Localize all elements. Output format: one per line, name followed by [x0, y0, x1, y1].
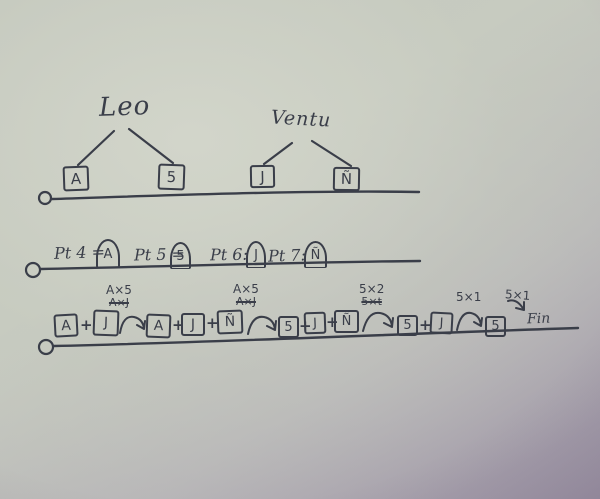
annotation-kept-5: 5×1: [505, 287, 531, 303]
end-label-fin: Fin: [527, 311, 551, 328]
timeline2-anchor-circle: [26, 263, 40, 277]
step-annotation-4: 5×1: [456, 291, 481, 303]
paper-background: Leo Ventu A 5 J Ñ Pt 4 = A Pt 5 = 5 Pt 6…: [0, 0, 600, 499]
step-annotation-2: A×5 A×J: [233, 283, 259, 308]
tree-edge-leo-a: [78, 131, 114, 165]
point-label-7: Pt 7:: [268, 245, 306, 265]
point-value-7: Ñ: [304, 241, 327, 268]
seq-box-2-j: J: [93, 310, 120, 337]
seq-box-7-j: J: [304, 312, 327, 335]
plus-sign-1: +: [80, 316, 93, 334]
timeline1-anchor-circle: [39, 192, 51, 204]
step-annotation-5: 5×1: [505, 288, 531, 302]
annotation-kept-2: A×5: [233, 282, 259, 296]
annotation-kept-3: 5×2: [359, 282, 384, 296]
node-box-n: Ñ: [333, 167, 360, 191]
group-label-ventu: Ventu: [270, 106, 331, 131]
seq-box-9-5: 5: [397, 315, 418, 336]
timeline3-anchor-circle: [39, 340, 53, 354]
annotation-kept-1: A×5: [106, 283, 132, 297]
seq-box-6-5: 5: [278, 316, 299, 338]
annotation-crossed-3: 5×t: [359, 296, 384, 308]
node-box-a: A: [63, 166, 90, 192]
step-annotation-1: A×5 A×J: [106, 284, 132, 309]
seq-box-1-a: A: [53, 313, 78, 337]
step-annotation-3: 5×2 5×t: [359, 283, 384, 308]
annotation-crossed-1: A×J: [106, 297, 132, 309]
point-label-6: Pt 6:: [210, 245, 248, 265]
group-label-leo: Leo: [98, 91, 150, 123]
curvy-arrow-icon-1: [120, 317, 145, 333]
point-value-6: J: [246, 241, 266, 268]
node-box-j: J: [250, 165, 275, 188]
seq-box-3-a: A: [146, 314, 172, 339]
point-value-4: A: [96, 239, 120, 268]
seq-box-10-j: J: [429, 311, 453, 334]
curvy-arrow-icon-2: [248, 317, 276, 334]
timeline1-line: [52, 192, 419, 199]
curvy-arrow-icon-4: [457, 313, 482, 330]
tree-edge-leo-5: [129, 129, 173, 163]
seq-box-8-n: Ñ: [334, 310, 359, 333]
node-box-5: 5: [158, 164, 186, 191]
seq-box-11-5: 5: [485, 316, 506, 337]
tree-edge-ventu-n: [312, 141, 351, 166]
seq-box-5-n: Ñ: [217, 310, 244, 335]
point-value-5: 5: [170, 242, 191, 269]
annotation-crossed-2: A×J: [233, 296, 259, 308]
curvy-arrow-icon-3: [363, 313, 393, 331]
seq-box-4-j: J: [181, 313, 205, 336]
annotation-kept-4: 5×1: [456, 290, 481, 304]
tree-edge-ventu-j: [264, 143, 292, 164]
